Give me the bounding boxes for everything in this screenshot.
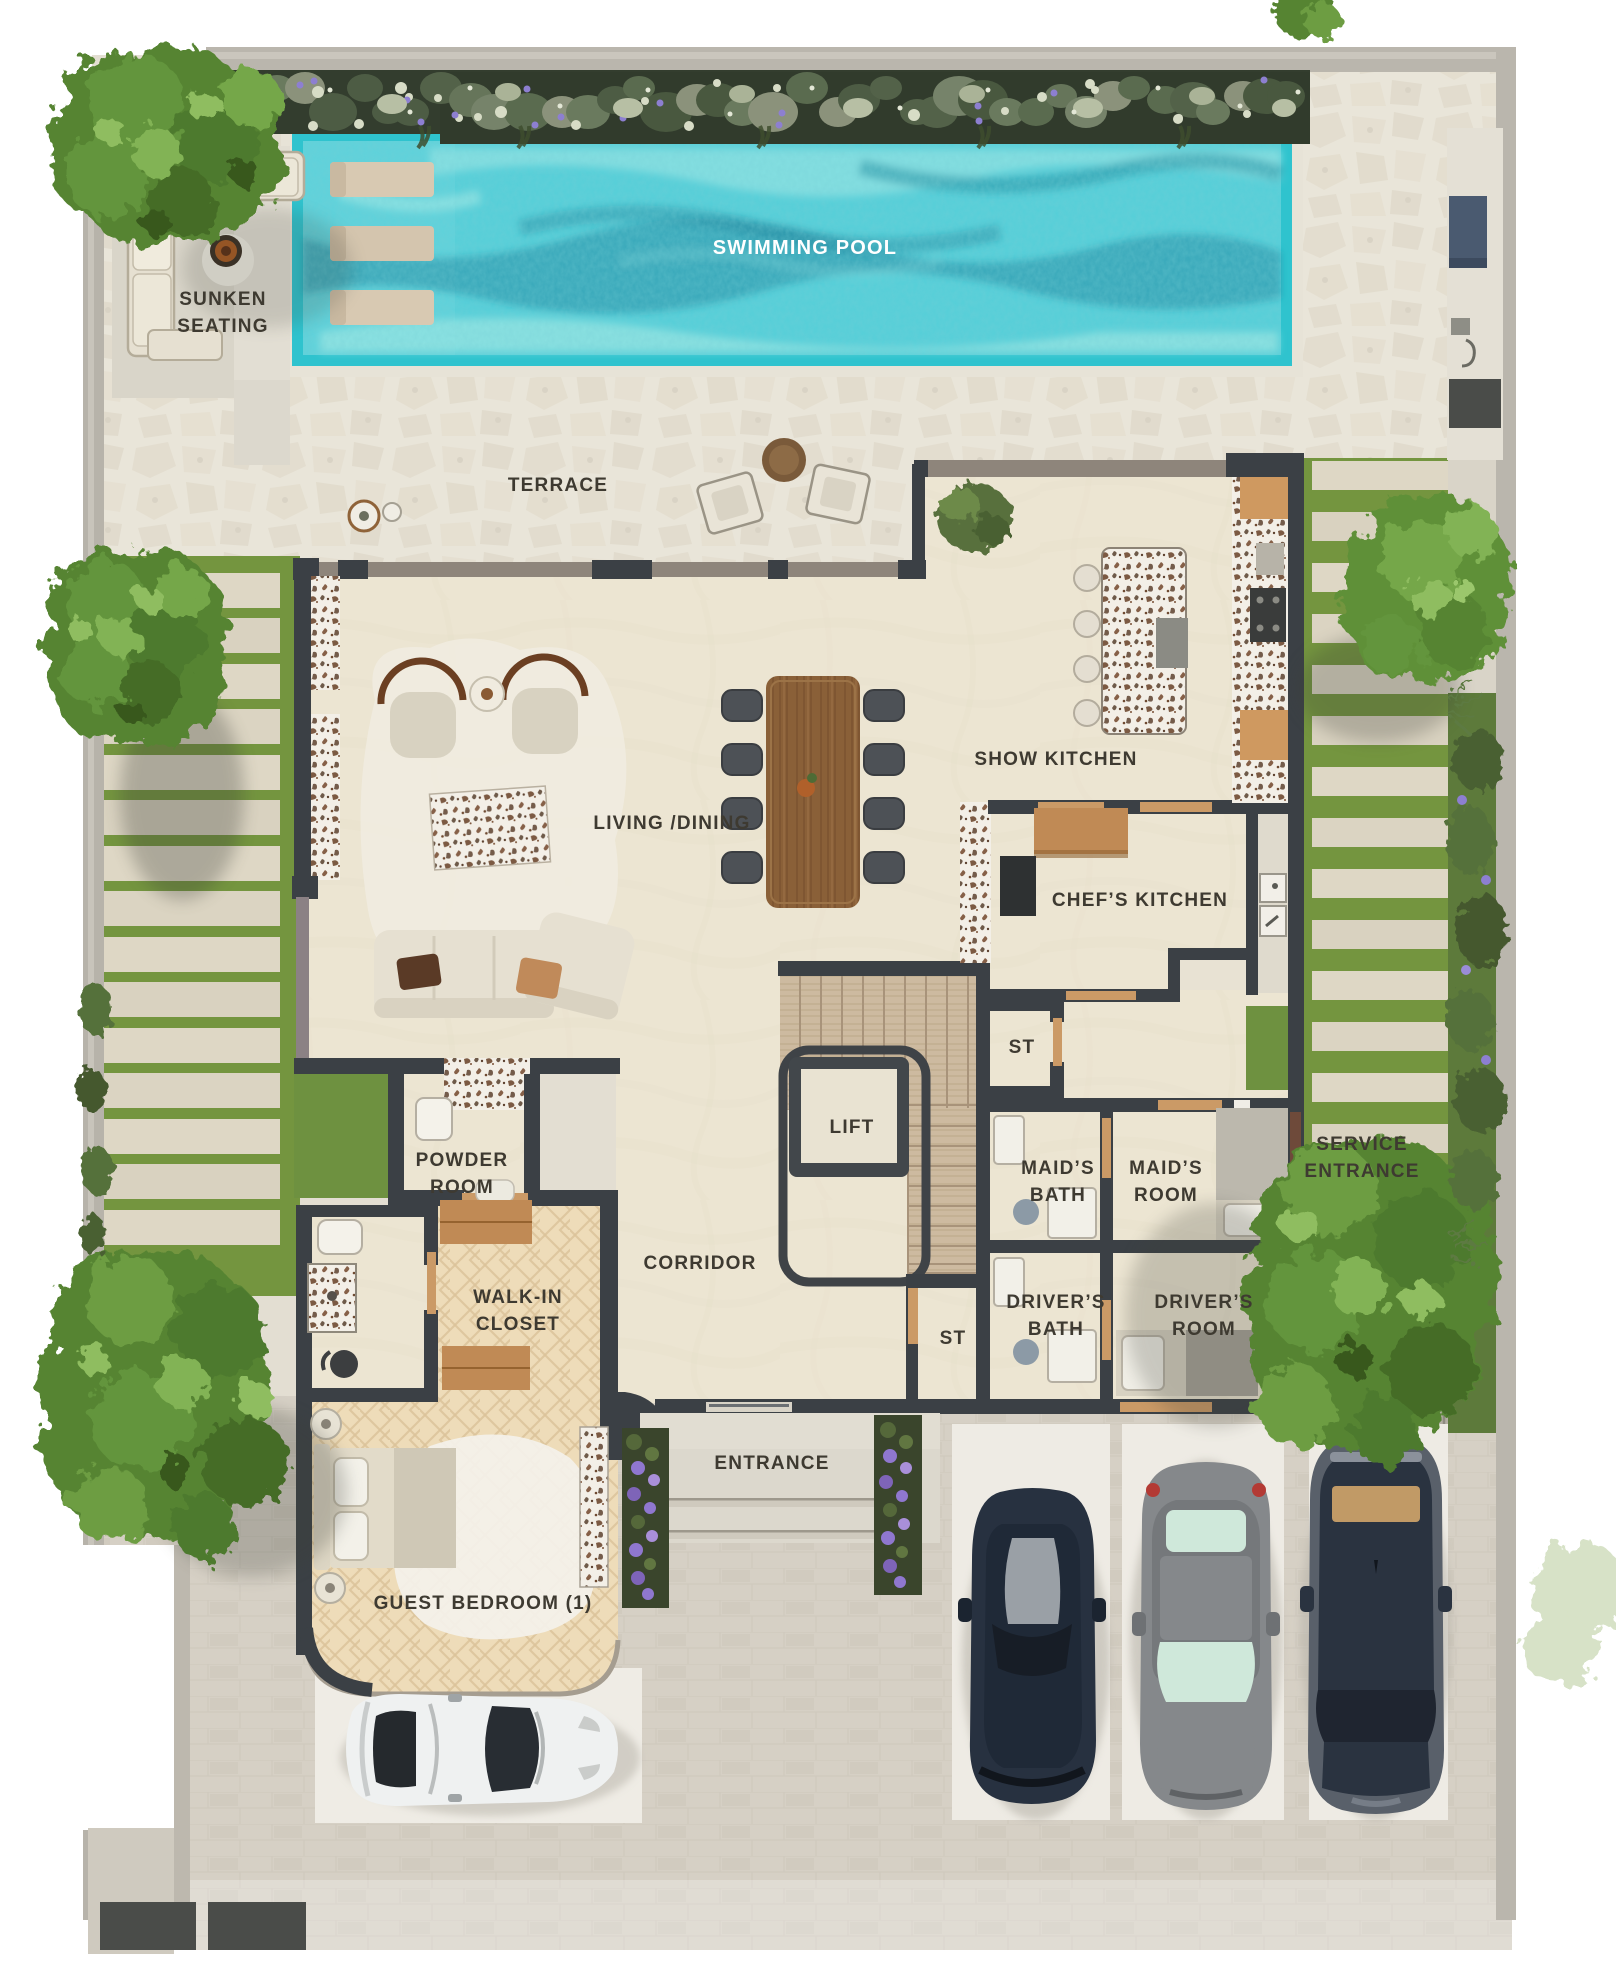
svg-text:SERVICE: SERVICE: [1316, 1134, 1407, 1155]
svg-text:ROOM: ROOM: [1172, 1319, 1236, 1340]
svg-text:POWDER: POWDER: [416, 1150, 509, 1171]
svg-text:CLOSET: CLOSET: [476, 1314, 560, 1335]
svg-text:SHOW KITCHEN: SHOW KITCHEN: [974, 749, 1137, 770]
svg-text:ROOM: ROOM: [430, 1177, 494, 1198]
svg-text:ROOM: ROOM: [1134, 1185, 1198, 1206]
svg-text:CORRIDOR: CORRIDOR: [643, 1253, 756, 1274]
svg-text:DRIVER’S: DRIVER’S: [1006, 1292, 1105, 1313]
svg-text:ENTRANCE: ENTRANCE: [714, 1453, 829, 1474]
svg-text:ST: ST: [940, 1328, 967, 1349]
svg-text:SUNKEN: SUNKEN: [179, 289, 266, 310]
svg-text:GUEST BEDROOM (1): GUEST BEDROOM (1): [374, 1593, 593, 1614]
svg-text:LIVING /DINING: LIVING /DINING: [593, 813, 750, 834]
svg-text:ENTRANCE: ENTRANCE: [1304, 1161, 1419, 1182]
svg-text:SEATING: SEATING: [177, 316, 268, 337]
svg-text:DRIVER’S: DRIVER’S: [1154, 1292, 1253, 1313]
svg-text:CHEF’S KITCHEN: CHEF’S KITCHEN: [1052, 890, 1228, 911]
svg-text:WALK-IN: WALK-IN: [473, 1287, 563, 1308]
svg-text:MAID’S: MAID’S: [1021, 1158, 1095, 1179]
svg-text:ST: ST: [1009, 1037, 1036, 1058]
svg-text:BATH: BATH: [1030, 1185, 1086, 1206]
svg-text:MAID’S: MAID’S: [1129, 1158, 1203, 1179]
svg-text:TERRACE: TERRACE: [508, 475, 608, 496]
svg-text:LIFT: LIFT: [830, 1117, 875, 1138]
svg-text:SWIMMING POOL: SWIMMING POOL: [713, 237, 897, 259]
svg-text:BATH: BATH: [1028, 1319, 1084, 1340]
